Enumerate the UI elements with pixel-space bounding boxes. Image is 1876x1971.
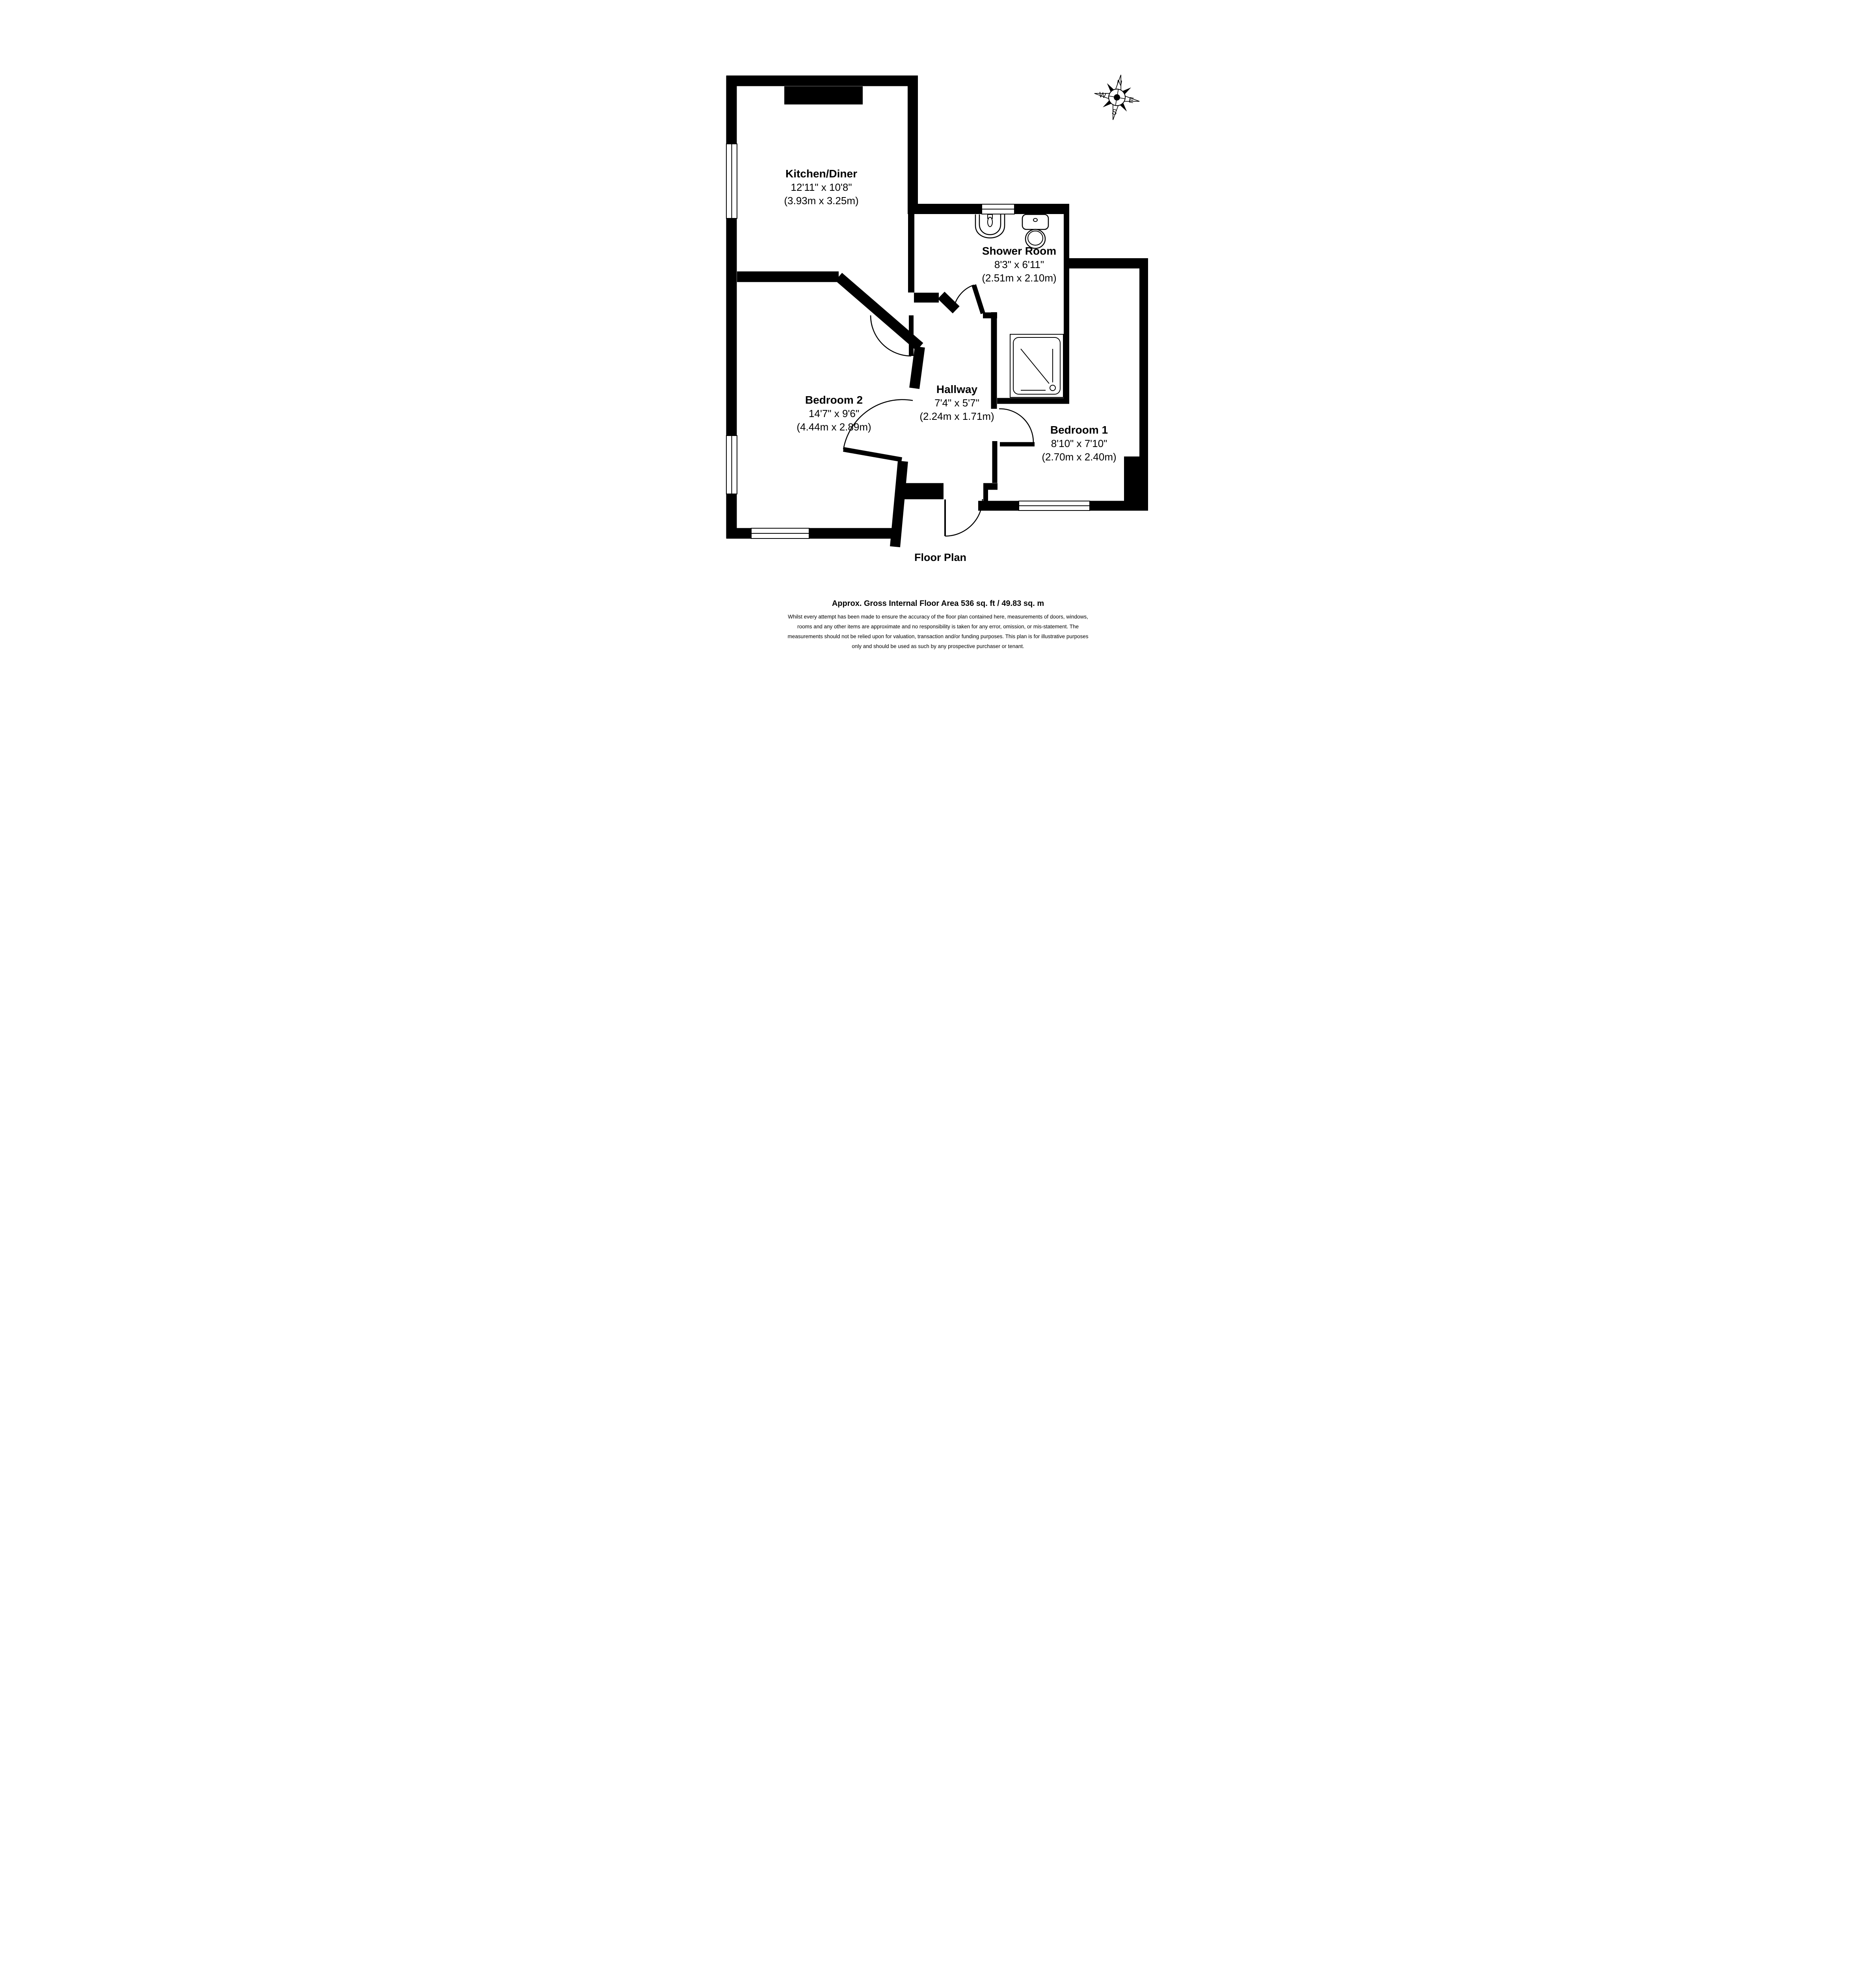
compass-label-west: W — [1098, 91, 1107, 100]
room-dims-metric: (2.51m x 2.10m) — [982, 271, 1056, 285]
toilet — [1022, 214, 1048, 248]
shower-door — [953, 285, 983, 313]
floor-area-summary: Approx. Gross Internal Floor Area 536 sq… — [832, 598, 1044, 609]
compass-label-north: N — [1116, 79, 1123, 88]
compass-label-east: E — [1128, 96, 1134, 105]
disclaimer-line: rooms and any other items are approximat… — [788, 622, 1089, 632]
floor-plan-drawing: N E S W — [703, 0, 1172, 664]
window-bedroom1-bottom — [1019, 501, 1090, 510]
compass-rose: N E S W — [1091, 71, 1143, 124]
bedroom1-door — [999, 409, 1035, 444]
window-bedroom2-left — [726, 436, 737, 494]
floor-plan-page: N E S W Kitchen/Diner 12'11" x 10'8" (3.… — [703, 0, 1172, 664]
room-name: Kitchen/Diner — [784, 167, 858, 181]
fixtures — [975, 214, 1063, 397]
room-label-shower: Shower Room 8'3" x 6'11" (2.51m x 2.10m) — [982, 244, 1056, 285]
walls — [726, 76, 1148, 547]
room-dims-metric: (2.70m x 2.40m) — [1042, 450, 1116, 464]
room-name: Hallway — [919, 383, 994, 396]
room-name: Shower Room — [982, 244, 1056, 258]
room-label-bedroom2: Bedroom 2 14'7" x 9'6" (4.44m x 2.89m) — [797, 393, 871, 434]
front-door — [945, 499, 983, 536]
room-label-hallway: Hallway 7'4" x 5'7" (2.24m x 1.71m) — [919, 383, 994, 423]
wall-hall-slant-upper — [839, 277, 920, 347]
room-dims-metric: (2.24m x 1.71m) — [919, 410, 994, 423]
window-bedroom2-bottom — [751, 528, 809, 538]
window-shower-top — [982, 204, 1014, 214]
wall-hall-slant-mid — [914, 347, 920, 388]
room-dims-imperial: 8'3" x 6'11" — [982, 258, 1056, 271]
room-dims-imperial: 7'4" x 5'7" — [919, 396, 994, 410]
sink — [975, 214, 1005, 238]
room-dims-imperial: 14'7" x 9'6" — [797, 407, 871, 420]
chimney-breast — [784, 86, 863, 104]
room-name: Bedroom 1 — [1042, 423, 1116, 437]
window-kitchen-left — [726, 144, 737, 218]
room-dims-metric: (4.44m x 2.89m) — [797, 420, 871, 434]
disclaimer-line: Whilst every attempt has been made to en… — [788, 612, 1089, 622]
room-dims-imperial: 12'11" x 10'8" — [784, 181, 858, 194]
disclaimer-line: only and should be used as such by any p… — [788, 641, 1089, 651]
page-title: Floor Plan — [914, 551, 966, 564]
disclaimer-text: Whilst every attempt has been made to en… — [788, 612, 1089, 651]
shower-tray — [1010, 334, 1063, 397]
disclaimer-line: measurements should not be relied upon f… — [788, 632, 1089, 641]
room-dims-metric: (3.93m x 3.25m) — [784, 194, 858, 207]
room-name: Bedroom 2 — [797, 393, 871, 407]
compass-label-south: S — [1111, 108, 1117, 117]
room-label-kitchen: Kitchen/Diner 12'11" x 10'8" (3.93m x 3.… — [784, 167, 858, 207]
room-label-bedroom1: Bedroom 1 8'10" x 7'10" (2.70m x 2.40m) — [1042, 423, 1116, 464]
room-dims-imperial: 8'10" x 7'10" — [1042, 437, 1116, 450]
